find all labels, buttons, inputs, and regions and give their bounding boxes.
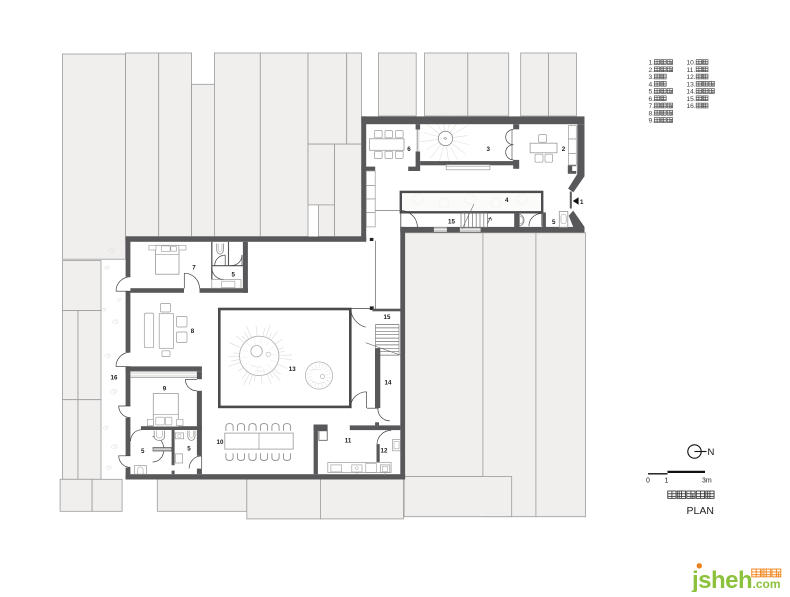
- svg-text:14.: 14.: [687, 89, 696, 96]
- svg-text:3: 3: [487, 146, 491, 153]
- svg-text:11: 11: [345, 438, 352, 445]
- svg-text:5: 5: [232, 272, 236, 279]
- svg-text:.com: .com: [753, 577, 781, 591]
- svg-text:6: 6: [407, 146, 411, 153]
- svg-text:14: 14: [385, 380, 392, 387]
- svg-text:2.: 2.: [649, 67, 655, 74]
- svg-text:9.: 9.: [649, 118, 655, 125]
- svg-text:11.: 11.: [687, 67, 696, 74]
- svg-text:5: 5: [187, 446, 191, 453]
- svg-text:16: 16: [111, 375, 118, 382]
- svg-text:15: 15: [384, 314, 391, 321]
- svg-text:8.: 8.: [649, 110, 655, 117]
- svg-text:12: 12: [381, 448, 388, 455]
- svg-text:15: 15: [448, 219, 455, 226]
- svg-text:3m: 3m: [702, 478, 712, 485]
- svg-text:5.: 5.: [649, 89, 655, 96]
- svg-text:1: 1: [580, 199, 584, 206]
- svg-text:N: N: [708, 447, 715, 458]
- svg-text:4: 4: [505, 197, 509, 204]
- svg-text:13.: 13.: [687, 81, 696, 88]
- svg-text:5: 5: [552, 219, 556, 226]
- svg-text:1.: 1.: [649, 60, 655, 67]
- svg-text:7: 7: [192, 265, 196, 272]
- svg-text:PLAN: PLAN: [687, 505, 714, 517]
- svg-text:12.: 12.: [687, 74, 696, 81]
- svg-text:3.: 3.: [649, 74, 655, 81]
- svg-text:2: 2: [562, 146, 566, 153]
- svg-text:5: 5: [141, 448, 145, 455]
- svg-text:10: 10: [217, 439, 224, 446]
- svg-text:16.: 16.: [687, 103, 696, 110]
- svg-text:13: 13: [289, 366, 296, 373]
- svg-text:15.: 15.: [687, 96, 696, 103]
- svg-text:8: 8: [191, 328, 195, 335]
- svg-text:0: 0: [646, 478, 650, 485]
- svg-text:10.: 10.: [687, 60, 696, 67]
- svg-text:jsheh: jsheh: [691, 567, 752, 592]
- svg-text:7.: 7.: [649, 103, 655, 110]
- svg-text:6.: 6.: [649, 96, 655, 103]
- svg-text:9: 9: [163, 385, 167, 392]
- svg-text:1: 1: [665, 478, 669, 485]
- svg-text:4.: 4.: [649, 81, 655, 88]
